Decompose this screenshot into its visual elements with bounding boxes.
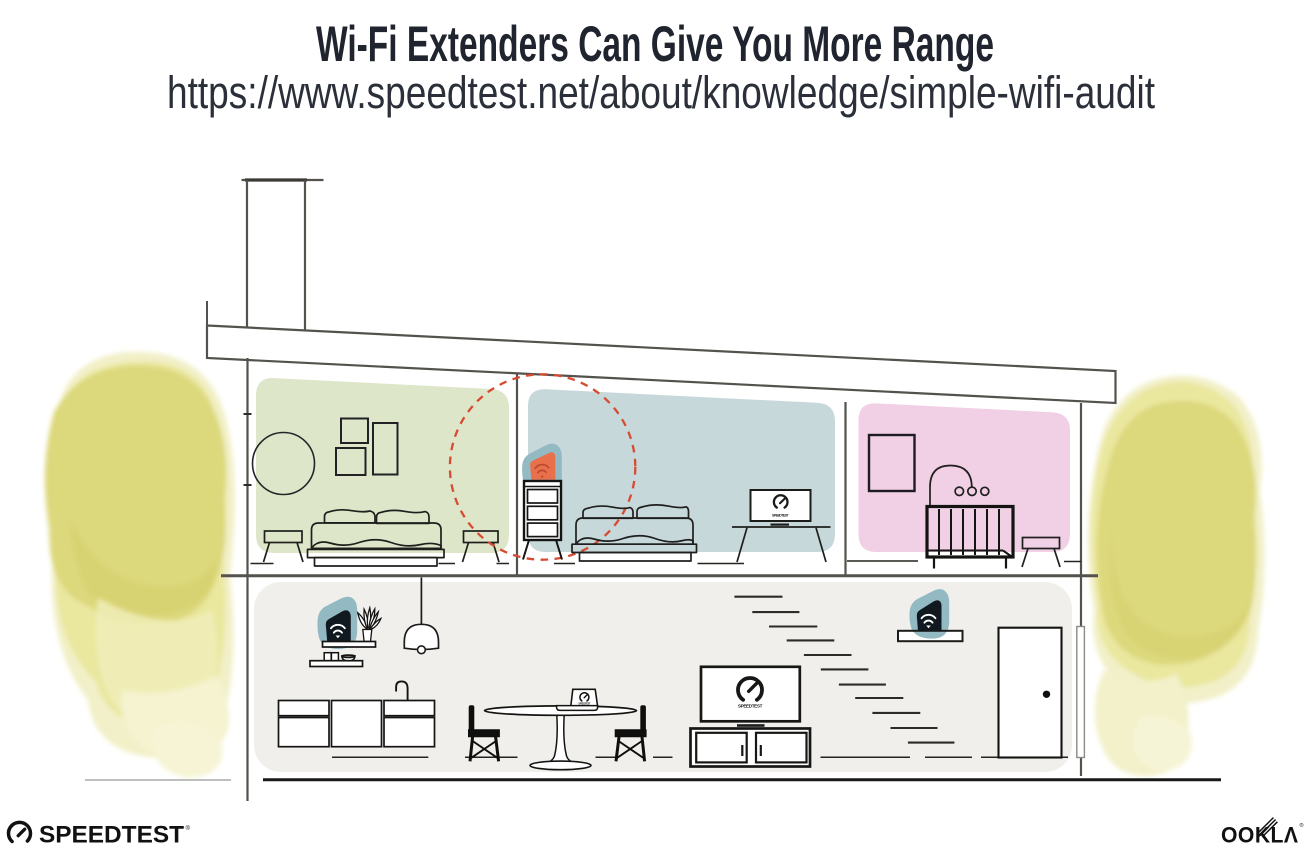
svg-text:SPEEDTEST: SPEEDTEST [772, 513, 790, 517]
svg-text:https://www.speedtest.net/abou: https://www.speedtest.net/about/knowledg… [167, 67, 1155, 118]
svg-text:®: ® [1300, 822, 1304, 829]
svg-text:Wi-Fi Extenders Can Give You M: Wi-Fi Extenders Can Give You More Range [316, 16, 994, 72]
svg-text:SPEEDTEST: SPEEDTEST [738, 703, 763, 708]
svg-text:SPEEDTEST: SPEEDTEST [39, 822, 184, 849]
svg-text:OOKLΛ: OOKLΛ [1221, 823, 1299, 848]
svg-text:®: ® [186, 825, 191, 832]
